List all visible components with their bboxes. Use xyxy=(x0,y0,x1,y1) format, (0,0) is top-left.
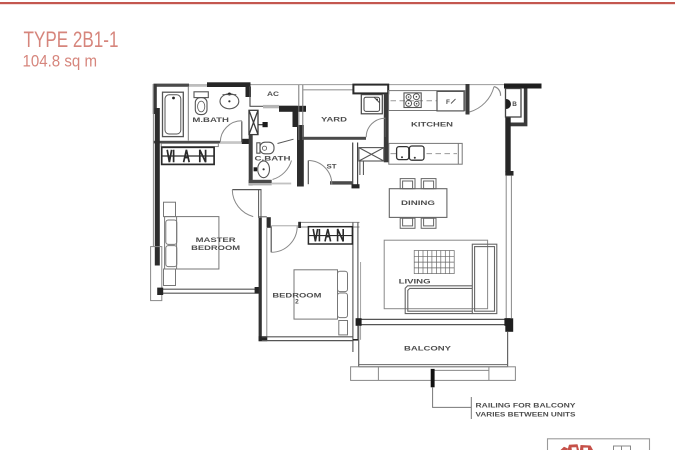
svg-text:ST: ST xyxy=(327,164,337,171)
svg-text:LIVING: LIVING xyxy=(399,279,431,286)
svg-text:M.BATH: M.BATH xyxy=(192,117,229,124)
svg-text:F: F xyxy=(446,99,450,106)
svg-text:BALCONY: BALCONY xyxy=(404,345,452,352)
svg-text:DINING: DINING xyxy=(401,200,435,207)
svg-text:MASTER: MASTER xyxy=(196,237,237,244)
svg-text:YARD: YARD xyxy=(321,117,348,124)
svg-text:104.8 sq m: 104.8 sq m xyxy=(23,53,98,71)
svg-text:TYPE 2B1-1: TYPE 2B1-1 xyxy=(24,27,119,52)
svg-text:B: B xyxy=(512,101,517,108)
svg-text:AC: AC xyxy=(267,91,279,98)
svg-text:C.BATH: C.BATH xyxy=(255,156,292,163)
svg-text:BEDROOM: BEDROOM xyxy=(191,245,240,252)
svg-text:2: 2 xyxy=(295,298,299,305)
svg-text:VARIES BETWEEN UNITS: VARIES BETWEEN UNITS xyxy=(476,411,577,418)
svg-text:KITCHEN: KITCHEN xyxy=(411,122,454,129)
svg-text:RAILING FOR BALCONY: RAILING FOR BALCONY xyxy=(476,402,577,409)
